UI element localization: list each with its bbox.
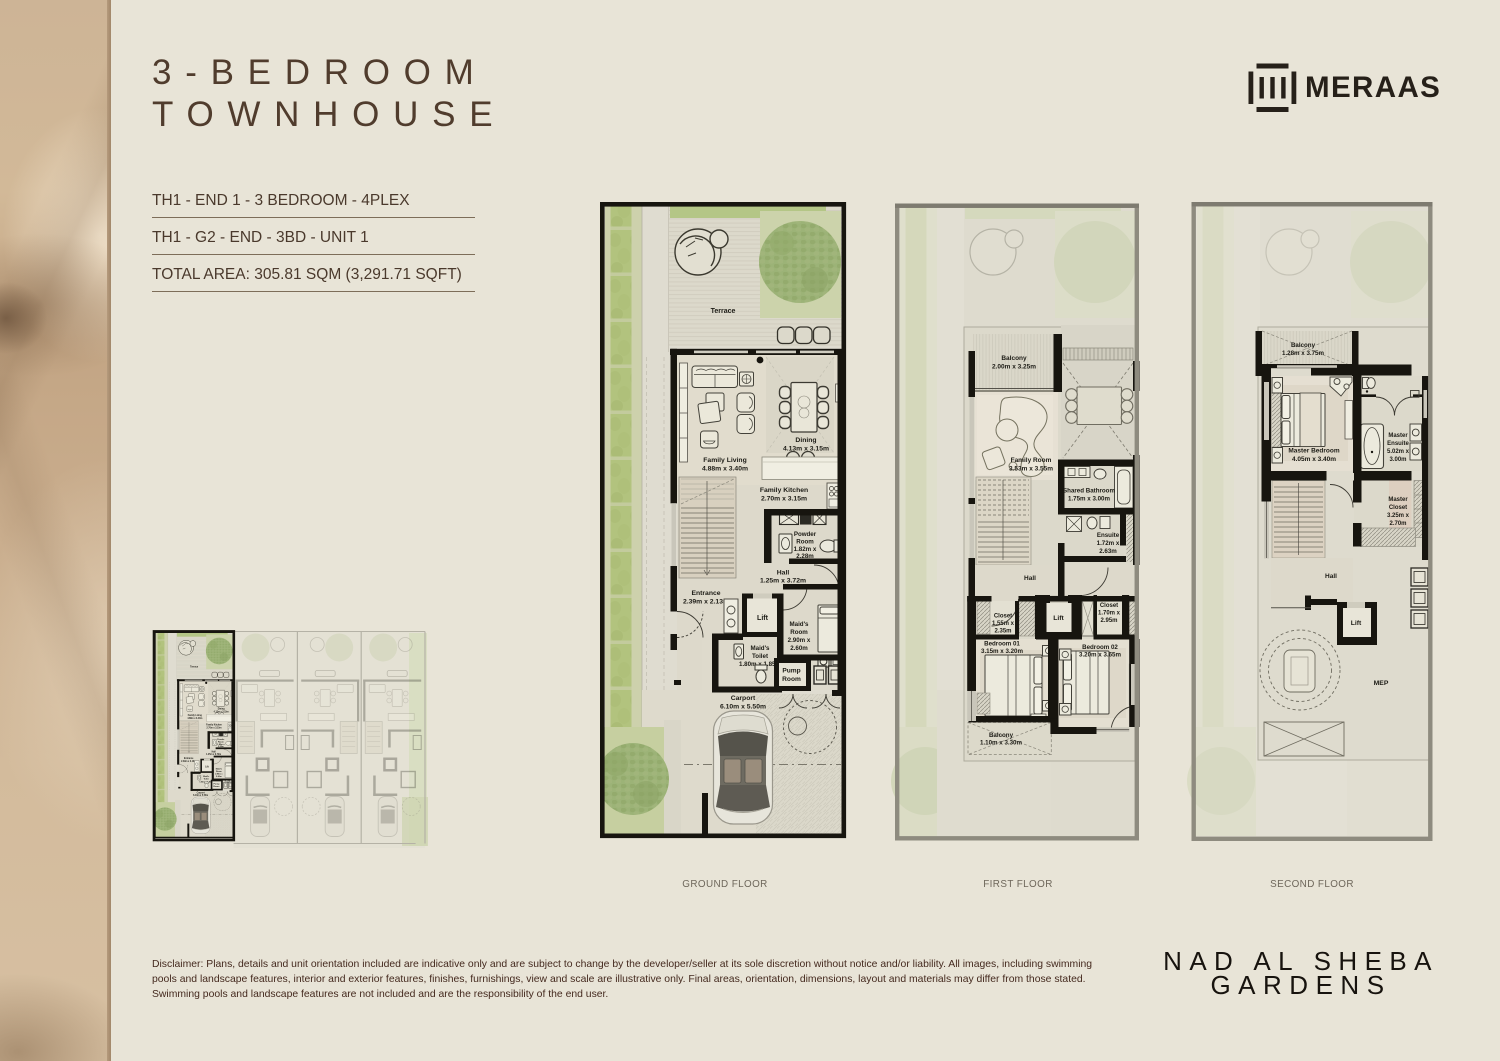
svg-text:Lift: Lift xyxy=(1351,620,1362,627)
svg-text:Carport: Carport xyxy=(731,695,756,702)
svg-text:Lift: Lift xyxy=(1053,615,1064,622)
svg-text:2.70m: 2.70m xyxy=(1389,521,1406,527)
svg-text:Hall: Hall xyxy=(777,570,790,577)
svg-text:1.72m x: 1.72m x xyxy=(1097,540,1120,547)
svg-text:Family Kitchen: Family Kitchen xyxy=(760,487,808,494)
svg-text:2.39m x 2.13m: 2.39m x 2.13m xyxy=(683,599,729,606)
svg-text:Maid's: Maid's xyxy=(750,645,770,652)
svg-text:Balcony: Balcony xyxy=(1001,355,1027,362)
svg-text:Toilet: Toilet xyxy=(752,653,768,660)
svg-text:5.02m x: 5.02m x xyxy=(1387,449,1410,455)
svg-text:Ensuite: Ensuite xyxy=(1387,441,1409,447)
svg-text:Pump: Pump xyxy=(782,668,800,675)
svg-text:1.70m x: 1.70m x xyxy=(1098,611,1121,617)
svg-text:Master: Master xyxy=(1388,497,1408,503)
svg-text:Entrance: Entrance xyxy=(691,590,720,597)
svg-text:Hall: Hall xyxy=(1325,573,1337,580)
svg-text:2.95m: 2.95m xyxy=(1100,618,1117,624)
svg-text:MEP: MEP xyxy=(1374,680,1389,687)
svg-text:Balcony: Balcony xyxy=(989,732,1014,739)
svg-text:4.05m x 3.40m: 4.05m x 3.40m xyxy=(1292,456,1336,463)
svg-text:Powder: Powder xyxy=(794,531,817,538)
svg-text:3.53m x 3.55m: 3.53m x 3.55m xyxy=(1009,466,1053,473)
svg-text:3.00m: 3.00m xyxy=(1389,457,1406,463)
svg-text:Hall: Hall xyxy=(1024,575,1036,582)
svg-text:2.63m: 2.63m xyxy=(1099,548,1117,555)
svg-text:2.00m x 3.25m: 2.00m x 3.25m xyxy=(992,364,1036,371)
svg-text:1.82m x: 1.82m x xyxy=(794,546,817,553)
svg-text:Maid's: Maid's xyxy=(789,621,809,628)
svg-text:Lift: Lift xyxy=(757,615,769,622)
svg-text:1.10m x 3.30m: 1.10m x 3.30m xyxy=(980,740,1022,747)
svg-text:Family Room: Family Room xyxy=(1011,457,1052,464)
svg-text:Closet: Closet xyxy=(1389,505,1407,511)
svg-text:3.20m x 3.65m: 3.20m x 3.65m xyxy=(1079,652,1121,659)
svg-text:Family Living: Family Living xyxy=(703,457,746,464)
svg-text:Balcony: Balcony xyxy=(1291,342,1316,349)
svg-text:1.25m x 3.72m: 1.25m x 3.72m xyxy=(760,578,806,585)
svg-text:2.90m x: 2.90m x xyxy=(788,637,811,644)
svg-text:Room: Room xyxy=(790,629,808,636)
svg-text:1.75m x 3.00m: 1.75m x 3.00m xyxy=(1068,496,1110,503)
svg-text:Ensuite: Ensuite xyxy=(1097,532,1120,539)
svg-text:6.10m x 5.50m: 6.10m x 5.50m xyxy=(720,704,766,711)
svg-text:Master: Master xyxy=(1388,433,1408,439)
svg-text:4.88m x 3.40m: 4.88m x 3.40m xyxy=(702,466,748,473)
svg-text:Terrace: Terrace xyxy=(711,308,736,315)
svg-text:2.70m x 3.15m: 2.70m x 3.15m xyxy=(761,496,807,503)
svg-text:Room: Room xyxy=(796,539,814,546)
svg-text:3.25m x: 3.25m x xyxy=(1387,513,1410,519)
svg-text:Room: Room xyxy=(782,676,801,683)
svg-text:Bedroom 01: Bedroom 01 xyxy=(984,641,1020,648)
svg-text:1.28m x 3.75m: 1.28m x 3.75m xyxy=(1282,350,1324,357)
svg-text:Shared Bathroom: Shared Bathroom xyxy=(1063,488,1115,495)
svg-text:2.35m: 2.35m xyxy=(994,629,1011,635)
svg-text:3.15m x 3.20m: 3.15m x 3.20m xyxy=(981,648,1023,655)
svg-text:Bedroom 02: Bedroom 02 xyxy=(1082,644,1118,651)
svg-text:Master Bedroom: Master Bedroom xyxy=(1288,448,1340,455)
svg-text:2.60m: 2.60m xyxy=(790,645,808,652)
svg-text:Closet: Closet xyxy=(1100,603,1118,609)
svg-text:Dining: Dining xyxy=(795,437,816,444)
